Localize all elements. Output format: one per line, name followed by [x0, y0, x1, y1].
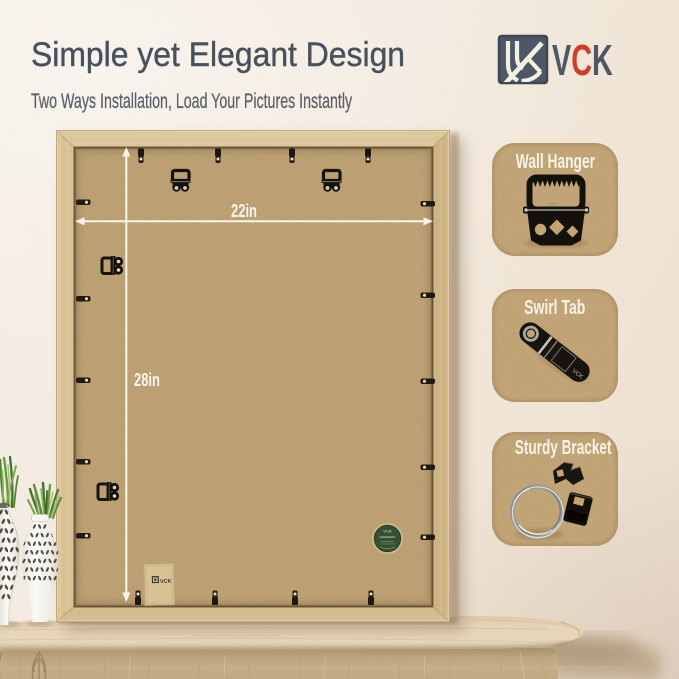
- svg-text:VCK: VCK: [383, 529, 392, 534]
- svg-text:VCK: VCK: [549, 201, 558, 206]
- svg-text:VCK: VCK: [160, 579, 172, 585]
